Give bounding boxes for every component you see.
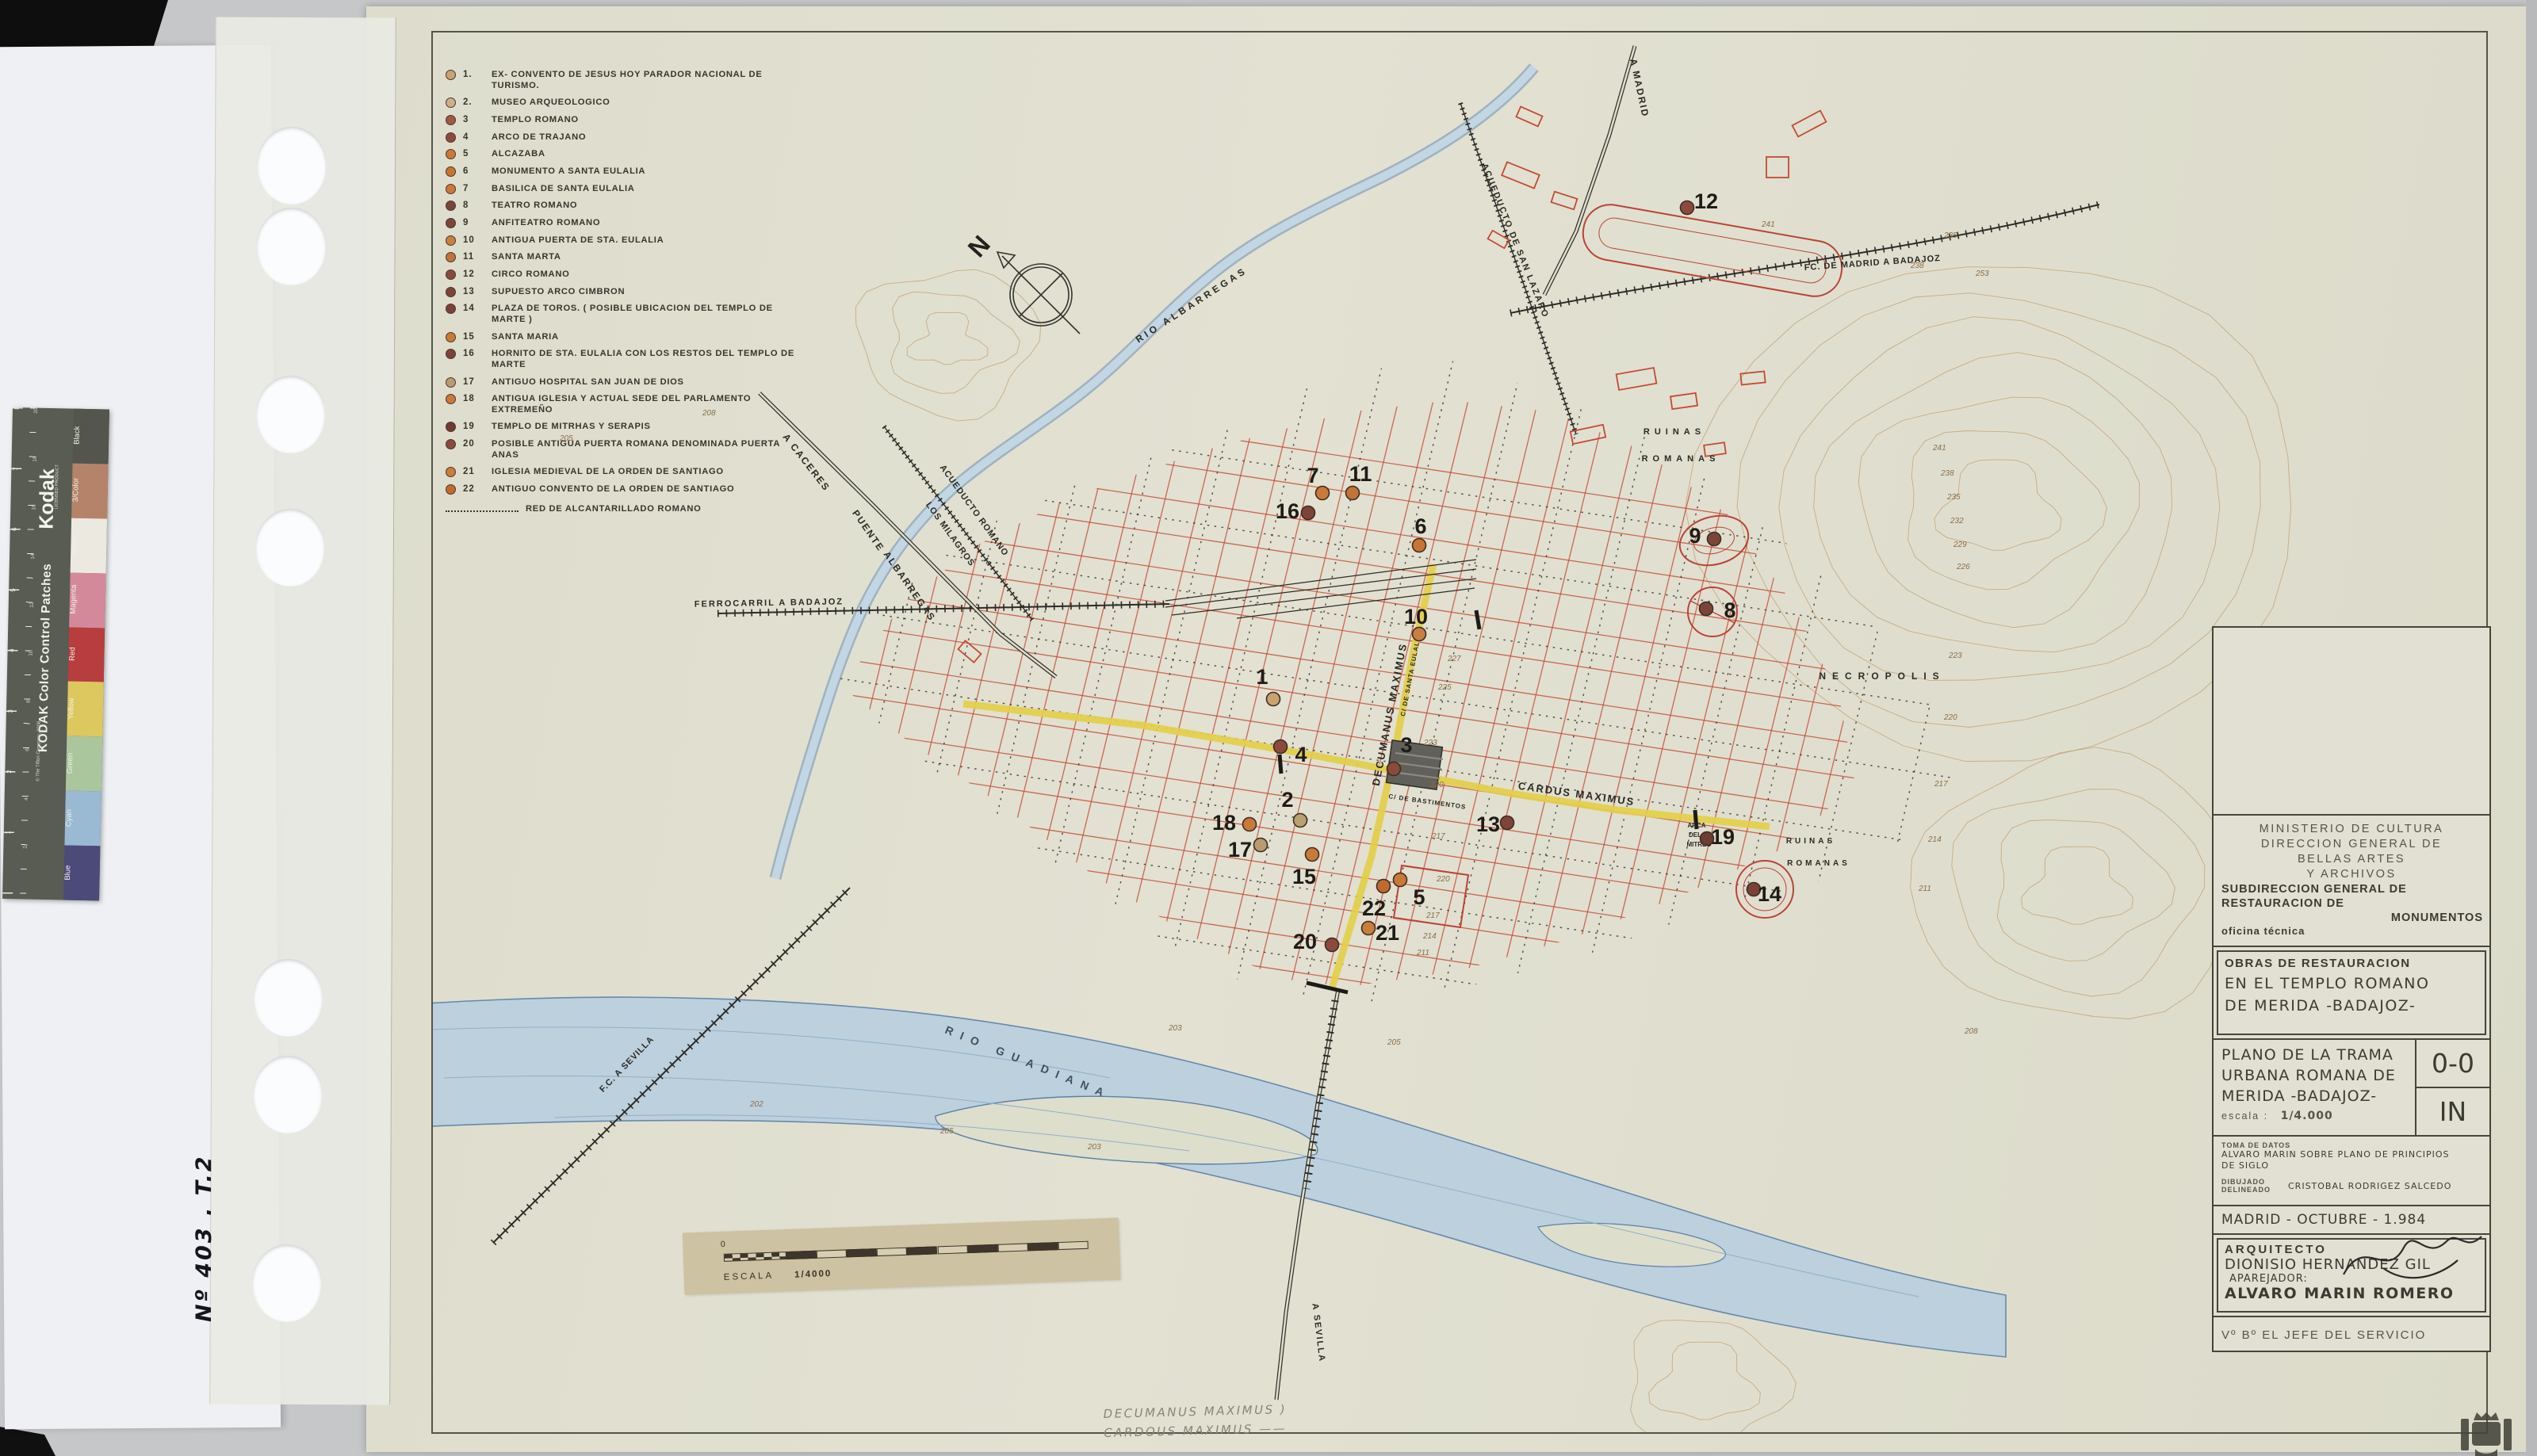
org-line: MINISTERIO DE CULTURA (2214, 822, 2489, 837)
legend-marker-dot (446, 184, 456, 194)
legend-item: 15SANTA MARIA (446, 332, 818, 343)
map-label: A MADRID (1628, 58, 1651, 119)
marker-dot (1267, 693, 1280, 706)
marker-dot (1501, 816, 1514, 830)
legend-item: 20POSIBLE ANTIGUA PUERTA ROMANA DENOMINA… (446, 439, 818, 460)
scale-bar-segment (817, 1249, 847, 1258)
legend-item: 8TEATRO ROMANO (446, 201, 818, 212)
contour-value: 223 (1423, 739, 1437, 747)
legend-item-number: 2. (463, 97, 484, 107)
legend-item: 19TEMPLO DE MITRHAS Y SERAPIS (446, 422, 818, 433)
sewer-line (2055, 333, 2227, 1062)
map-label: RUINAS (1644, 427, 1705, 437)
marker-dot (1306, 848, 1319, 862)
map-label: RIO ALBARREGAS (1134, 265, 1249, 346)
street-line (1594, 365, 1756, 1030)
sewer-line (1567, 333, 1739, 1062)
contour-value: 205 (939, 1127, 954, 1136)
contour-ring (891, 292, 1020, 393)
ruin-fragment (1766, 157, 1789, 178)
street-line (1908, 365, 2070, 1030)
data-source-label: TOMA DE DATOS (2221, 1141, 2482, 1149)
legend-item-label: ANFITEATRO ROMANO (492, 218, 802, 229)
legend-item-number: 20 (463, 439, 484, 449)
map-marker-18: 18 (1212, 811, 1257, 835)
org-line: Y ARCHIVOS (2214, 867, 2489, 882)
marker-number: 9 (1689, 524, 1701, 548)
marker-number: 10 (1404, 605, 1428, 629)
legend-marker-dot (446, 332, 456, 342)
project-title-line2: EN EL TEMPLO ROMANO (2225, 975, 2478, 992)
legend: 1.EX- CONVENTO DE JESUS HOY PARADOR NACI… (446, 70, 818, 522)
map-marker-17: 17 (1228, 838, 1268, 862)
scale-bar-segment (1027, 1242, 1058, 1251)
marker-number: 5 (1413, 885, 1425, 909)
contour-value: 226 (1956, 563, 1970, 571)
legend-item-label: PLAZA DE TOROS. ( POSIBLE UBICACION DEL … (492, 304, 802, 325)
org-line: DIRECCION GENERAL DE (2214, 837, 2489, 852)
sewer-line (1078, 333, 1250, 1062)
sheet-code-top: 0-0 (2416, 1040, 2489, 1088)
legend-sewer-item: RED DE ALCANTARILLADO ROMANO (446, 504, 818, 515)
marker-number: 19 (1711, 825, 1735, 849)
marker-dot (1708, 533, 1721, 546)
monument-markers: 12345678910111213141516171819202122 (1212, 189, 1781, 953)
contour-value: 241 (1932, 444, 1946, 453)
legend-marker-dot (446, 287, 456, 297)
legend-item-label: SANTA MARIA (492, 332, 802, 343)
street-line (1663, 365, 1826, 1030)
legend-item: 1.EX- CONVENTO DE JESUS HOY PARADOR NACI… (446, 70, 818, 91)
street-line (793, 547, 1919, 718)
contour-ring (1686, 267, 2291, 762)
marker-dot (1362, 922, 1376, 935)
contour-value: 238 (1940, 469, 1954, 478)
legend-item-number: 15 (463, 332, 484, 342)
contour-value: 214 (1927, 835, 1942, 844)
legend-marker-dot (446, 304, 456, 314)
map-label: NECROPOLIS (1819, 671, 1945, 682)
legend-item: 9ANFITEATRO ROMANO (446, 218, 818, 229)
marker-number: 11 (1349, 462, 1372, 486)
legend-item-label: TEATRO ROMANO (492, 201, 802, 212)
org-line: BELLAS ARTES (2214, 852, 2489, 867)
street-line (2012, 365, 2175, 1030)
sewer-line (1776, 333, 1948, 1062)
legend-item-number: 7 (463, 184, 484, 193)
ruin-fragment (1793, 111, 1827, 137)
contour-value: 211 (1416, 949, 1429, 957)
scale-bar-subdivision (724, 1252, 786, 1262)
street-line (1733, 365, 1896, 1030)
marker-dot (1302, 506, 1315, 520)
circo-romano-inner (1597, 216, 1828, 285)
marker-dot (1377, 880, 1391, 893)
map-marker-14: 14 (1747, 882, 1782, 906)
scale-bar-segment (937, 1245, 967, 1254)
marker-number: 16 (1276, 499, 1299, 523)
legend-item: 18ANTIGUA IGLESIA Y ACTUAL SEDE DEL PARL… (446, 394, 818, 415)
street-line (1105, 365, 1268, 1030)
contour-ring (1908, 431, 2107, 590)
legend-item-label: POSIBLE ANTIGUA PUERTA ROMANA DENOMINADA… (492, 439, 802, 460)
ruin-fragment (1670, 393, 1697, 409)
marker-dot (1394, 873, 1407, 887)
sheet-code-bottom: IN (2416, 1088, 2489, 1135)
approval-panel: Vº Bº EL JEFE DEL SERVICIO (2214, 1317, 2489, 1353)
map-label: C/ DE BASTIMENTOS (1388, 793, 1467, 811)
legend-marker-dot (446, 166, 456, 177)
contour-ring (1952, 789, 2205, 996)
contour-value: 202 (749, 1100, 763, 1109)
street-line (793, 512, 1919, 683)
ruin-fragment (1617, 368, 1657, 390)
legend-item-number: 6 (463, 166, 484, 176)
legend-item: 10ANTIGUA PUERTA DE STA. EULALIA (446, 235, 818, 246)
marker-dot (1254, 839, 1268, 852)
legend-item: 14PLAZA DE TOROS. ( POSIBLE UBICACION DE… (446, 304, 818, 325)
road-madrid-core (1544, 46, 1635, 295)
contour-value: 214 (1422, 932, 1437, 941)
street-line (1524, 365, 1686, 1030)
project-title-line1: OBRAS DE RESTAURACION (2225, 957, 2478, 970)
map-marker-1: 1 (1256, 665, 1280, 706)
map-marker-13: 13 (1476, 812, 1514, 836)
legend-item-number: 21 (463, 467, 484, 476)
org-subdirection-line: SUBDIRECCION GENERAL DE (2214, 882, 2489, 896)
legend-item: 5ALCAZABA (446, 149, 818, 160)
map-marker-12: 12 (1681, 189, 1719, 215)
marker-dot (1413, 628, 1426, 641)
map-marker-11: 11 (1346, 462, 1372, 500)
map-marker-21: 21 (1362, 921, 1400, 945)
map-label: DEL (1689, 831, 1701, 839)
map-label: A SEVILLA (1310, 1303, 1326, 1363)
legend-marker-dot (446, 484, 456, 495)
scale-caption-label: ESCALA (724, 1271, 775, 1282)
contour-ring (907, 312, 988, 365)
dotted-line-symbol (446, 504, 518, 512)
legend-item: 6MONUMENTO A SANTA EULALIA (446, 166, 818, 178)
legend-item-label: SUPUESTO ARCO CIMBRON (492, 287, 802, 298)
sheet-title-line1: PLANO DE LA TRAMA (2221, 1045, 2415, 1065)
org-office-line: oficina técnica (2214, 925, 2489, 937)
legend-item-number: 14 (463, 304, 484, 313)
map-marker-20: 20 (1293, 930, 1339, 953)
scale-bar-segment (877, 1248, 907, 1256)
ruin-fragment (1740, 371, 1765, 384)
sheet-code-cells: 0-0 IN (2415, 1040, 2489, 1135)
legend-item-label: ANTIGUA IGLESIA Y ACTUAL SEDE DEL PARLAM… (492, 394, 802, 415)
legend-marker-dot (446, 97, 456, 108)
contour-value: 211 (1918, 885, 1931, 893)
scale-bar-segment (997, 1243, 1027, 1252)
street-line (793, 373, 1919, 544)
contour-ring (1631, 1320, 1797, 1451)
sheet-title-line2: URBANA ROMANA DE (2221, 1065, 2415, 1086)
street-line (793, 791, 1919, 962)
circo-romano-outline (1578, 201, 1846, 300)
marker-dot (1316, 487, 1330, 500)
legend-item: 11SANTA MARTA (446, 252, 818, 263)
project-title-line3: DE MERIDA -BADAJOZ- (2225, 997, 2478, 1015)
marker-dot (1413, 539, 1426, 552)
legend-marker-dot (446, 422, 456, 432)
ruin-fragment (1552, 192, 1578, 210)
ruin-fragment (959, 640, 982, 662)
legend-item-number: 1. (463, 70, 484, 79)
legend-item-number: 11 (463, 252, 484, 262)
street-line (1803, 365, 1965, 1030)
contour-ring (1911, 747, 2234, 1019)
marker-dot (1387, 762, 1401, 776)
legend-item-number: 22 (463, 484, 484, 494)
legend-item-number: 18 (463, 394, 484, 403)
scale-bar: 0 (724, 1241, 1089, 1262)
contour-value: 203 (1087, 1143, 1101, 1152)
street-line (1977, 365, 2140, 1030)
sheet-title-panel: PLANO DE LA TRAMA URBANA ROMANA DE MERID… (2214, 1040, 2489, 1137)
contour-value: 225 (1437, 683, 1452, 692)
contour-ring (1814, 353, 2172, 652)
street-line (931, 365, 1093, 1030)
contour-value: 220 (1429, 781, 1444, 789)
legend-item-number: 4 (463, 132, 484, 142)
legend-item-number: 10 (463, 235, 484, 245)
legend-item-number: 9 (463, 218, 484, 227)
scale-bar-segment (786, 1251, 817, 1259)
contour-ring (1737, 293, 2260, 728)
contour-ring (1779, 317, 2220, 681)
coat-of-arms-stamp (2461, 1412, 2512, 1456)
legend-item: 4ARCO DE TRAJANO (446, 132, 818, 143)
legend-item-label: TEMPLO DE MITRHAS Y SERAPIS (492, 422, 802, 433)
map-marker-15: 15 (1292, 848, 1319, 889)
legend-marker-dot (446, 70, 456, 80)
street-line (1628, 365, 1791, 1030)
legend-item: 3TEMPLO ROMANO (446, 115, 818, 126)
legend-marker-dot (446, 252, 456, 262)
street-line (1489, 365, 1651, 1030)
legend-item-number: 13 (463, 287, 484, 296)
legend-item: 12CIRCO ROMANO (446, 269, 818, 281)
map-marker-7: 7 (1307, 464, 1329, 500)
legend-item-label: TEMPLO ROMANO (492, 115, 802, 126)
legend-marker-dot (446, 394, 456, 404)
street-line (793, 721, 1919, 892)
legend-item: 17ANTIGUO HOSPITAL SAN JUAN DE DIOS (446, 377, 818, 388)
marker-dot (1274, 740, 1288, 754)
scale-caption-value: 1/4000 (794, 1269, 832, 1280)
map-label: RUINAS (1786, 837, 1835, 846)
map-label: ROMANAS (1787, 859, 1850, 868)
pencil-annotations: DECUMANUS MAXIMUS ) CARDOUS MAXIMUS —— (1103, 1402, 1288, 1445)
street-line (826, 365, 989, 1030)
legend-item-number: 12 (463, 269, 484, 279)
signature (2337, 1229, 2488, 1284)
scale-bar-segment (907, 1246, 937, 1255)
legend-item-number: 17 (463, 377, 484, 387)
legend-marker-dot (446, 218, 456, 228)
contour-value: 232 (1950, 517, 1964, 525)
legend-item: 21IGLESIA MEDIEVAL DE LA ORDEN DE SANTIA… (446, 467, 818, 478)
contour-value: 229 (1953, 541, 1967, 549)
scale-caption: ESCALA1/4000 (724, 1269, 832, 1282)
legend-item-label: EX- CONVENTO DE JESUS HOY PARADOR NACION… (492, 70, 802, 91)
pencil-note-line2: CARDOUS MAXIMUS —— (1104, 1421, 1288, 1440)
sewer-line (1985, 333, 2157, 1062)
map-label: FERROCARRIL A BADAJOZ (695, 597, 844, 609)
north-arrow: N (962, 230, 1080, 334)
legend-marker-dot (446, 349, 456, 359)
city-plan-drawing: N RIO ALBARREGASACUEDUCTO DE SAN LAZAROA… (0, 0, 2537, 1456)
marker-dot (1294, 814, 1307, 827)
data-source-value2: DE SIGLO (2221, 1160, 2482, 1171)
ruin-fragment (1516, 107, 1542, 127)
sheet-title-line3: MERIDA -BADAJOZ- (2221, 1086, 2415, 1106)
sewer-line (1357, 333, 1529, 1062)
legend-item-number: 8 (463, 201, 484, 210)
legend-item-label: CIRCO ROMANO (492, 269, 802, 281)
marker-number: 1 (1256, 665, 1268, 689)
title-block-organization: MINISTERIO DE CULTURA DIRECCION GENERAL … (2214, 816, 2489, 947)
data-source-panel: TOMA DE DATOS ALVARO MARIN SOBRE PLANO D… (2214, 1137, 2489, 1206)
drawn-by-value: CRISTOBAL RODRIGEZ SALCEDO (2288, 1181, 2451, 1192)
map-marker-10: 10 (1404, 605, 1428, 641)
street-line (793, 477, 1919, 648)
contour-value: 238 (1910, 262, 1924, 270)
map-label: ROMANAS (1642, 454, 1720, 464)
legend-sewer-label: RED DE ALCANTARILLADO ROMANO (526, 504, 818, 515)
project-title-panel: OBRAS DE RESTAURACION EN EL TEMPLO ROMAN… (2214, 947, 2489, 1040)
sewer-line (1915, 333, 2087, 1062)
marker-number: 12 (1694, 189, 1718, 213)
legend-marker-dot (446, 467, 456, 477)
contour-ring (1649, 1342, 1761, 1420)
street-line (2047, 365, 2210, 1030)
legend-marker-dot (446, 235, 456, 246)
marker-number: 20 (1293, 930, 1317, 953)
ruin-fragment (1502, 162, 1540, 188)
contour-value: 220 (1943, 713, 1957, 722)
legend-item: 2.MUSEO ARQUEOLOGICO (446, 97, 818, 109)
street-line (1698, 365, 1861, 1030)
street-line (1873, 365, 2035, 1030)
marker-number: 2 (1281, 788, 1293, 812)
scale-tick-label: 0 (721, 1240, 726, 1249)
title-block-empty-panel (2214, 628, 2489, 816)
legend-item-label: ALCAZABA (492, 149, 802, 160)
street-line (1768, 365, 1930, 1030)
marker-number: 4 (1295, 743, 1307, 766)
legend-item-label: HORNITO DE STA. EULALIA CON LOS RESTOS D… (492, 349, 802, 370)
marker-number: 6 (1414, 514, 1426, 538)
contour-value: 205 (1387, 1038, 1401, 1047)
legend-item-number: 16 (463, 349, 484, 358)
map-marker-8: 8 (1700, 598, 1736, 622)
legend-item-label: SANTA MARTA (492, 252, 802, 263)
roman-structures (1387, 201, 1846, 927)
contour-value: 241 (1761, 220, 1775, 229)
road-madrid (1544, 46, 1635, 295)
marker-dot (1243, 818, 1257, 831)
legend-item-label: ANTIGUO CONVENTO DE LA ORDEN DE SANTIAGO (492, 484, 802, 495)
legend-item-label: IGLESIA MEDIEVAL DE LA ORDEN DE SANTIAGO (492, 467, 802, 478)
surveyor-name: ALVARO MARIN ROMERO (2225, 1285, 2478, 1302)
legend-item-label: MONUMENTO A SANTA EULALIA (492, 166, 802, 178)
legend-marker-dot (446, 132, 456, 143)
legend-item-label: ANTIGUA PUERTA DE STA. EULALIA (492, 235, 802, 246)
contour-value: 223 (1948, 652, 1962, 660)
marker-dot (1681, 201, 1694, 215)
marker-number: 14 (1758, 882, 1781, 906)
contour-value: 227 (1447, 655, 1461, 663)
marker-dot (1326, 938, 1339, 952)
scale-label: escala : (2221, 1110, 2268, 1122)
marker-dot (1346, 487, 1360, 500)
railway-madrid (1510, 204, 2099, 313)
contour-value: 253 (1975, 269, 1989, 278)
legend-marker-dot (446, 269, 456, 280)
sewer-line (939, 333, 1111, 1062)
legend-item-label: MUSEO ARQUEOLOGICO (492, 97, 802, 109)
legend-item: 16HORNITO DE STA. EULALIA CON LOS RESTOS… (446, 349, 818, 370)
marker-number: 15 (1292, 865, 1316, 889)
title-block: MINISTERIO DE CULTURA DIRECCION GENERAL … (2212, 626, 2491, 1352)
marker-number: 13 (1476, 812, 1500, 836)
legend-item-label: ARCO DE TRAJANO (492, 132, 802, 143)
street-line (1419, 365, 1582, 1030)
street-line (1942, 365, 2105, 1030)
org-subdirection-line: RESTAURACION DE (2214, 896, 2489, 911)
street-line (1001, 365, 1163, 1030)
marker-number: 3 (1400, 733, 1412, 757)
marker-number: 21 (1376, 921, 1399, 945)
contour-value: 217 (1431, 832, 1445, 841)
scale-bar-segment (847, 1248, 877, 1257)
street-line (1035, 365, 1198, 1030)
contour-ring (1997, 820, 2175, 961)
scale-bar-segment (967, 1244, 997, 1253)
contour-ring (2022, 846, 2133, 924)
marker-number: 8 (1724, 598, 1735, 622)
legend-item-label: ANTIGUO HOSPITAL SAN JUAN DE DIOS (492, 377, 802, 388)
legend-marker-dot (446, 201, 456, 211)
map-marker-2: 2 (1281, 788, 1307, 827)
marker-number: 18 (1212, 811, 1236, 835)
marker-number: 17 (1228, 838, 1252, 862)
legend-marker-dot (446, 115, 456, 125)
map-label: ARCA (1687, 822, 1705, 829)
legend-item-number: 19 (463, 422, 484, 431)
contour-value: 235 (1946, 493, 1961, 502)
contour-value: 217 (1425, 911, 1440, 920)
marker-dot (1700, 602, 1713, 616)
legend-marker-dot (446, 149, 456, 159)
legend-item-label: BASILICA DE SANTA EULALIA (492, 184, 802, 195)
map-marker-16: 16 (1276, 499, 1315, 523)
marker-number: 22 (1362, 896, 1386, 920)
marker-number: 7 (1307, 464, 1318, 487)
contour-value: 203 (1168, 1024, 1182, 1033)
contour-value: 217 (1934, 780, 1948, 789)
scale-value: 1/4.000 (2281, 1110, 2333, 1122)
architect-panel: ARQUITECTO DIONISIO HERNANDEZ GIL APAREJ… (2214, 1235, 2489, 1317)
org-subdirection-line: MONUMENTOS (2214, 911, 2489, 925)
north-letter: N (962, 230, 996, 262)
legend-item: 13SUPUESTO ARCO CIMBRON (446, 287, 818, 298)
data-source-value: ALVARO MARIN SOBRE PLANO DE PRINCIPIOS (2221, 1149, 2482, 1160)
